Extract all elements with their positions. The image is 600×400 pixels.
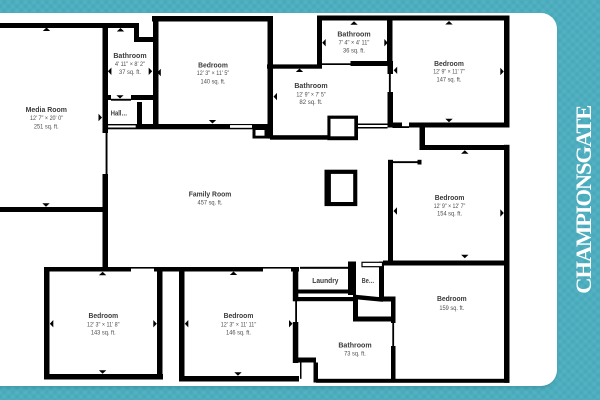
svg-text:Family Room: Family Room: [189, 189, 232, 198]
svg-text:73 sq. ft.: 73 sq. ft.: [344, 351, 366, 358]
svg-text:Hall…: Hall…: [111, 108, 128, 117]
svg-text:37 sq. ft.: 37 sq. ft.: [119, 69, 141, 76]
svg-text:12' 9" × 12' 7": 12' 9" × 12' 7": [434, 203, 466, 210]
svg-text:Be…: Be…: [362, 276, 375, 285]
svg-text:82 sq. ft.: 82 sq. ft.: [299, 99, 322, 106]
svg-text:12' 3" × 11' 11": 12' 3" × 11' 11": [221, 321, 257, 328]
svg-text:457 sq. ft.: 457 sq. ft.: [198, 200, 223, 207]
svg-text:Bedroom: Bedroom: [198, 60, 228, 69]
svg-text:12' 9" × 11' 7": 12' 9" × 11' 7": [433, 69, 465, 76]
svg-text:Bathroom: Bathroom: [338, 340, 371, 349]
svg-text:36 sq. ft.: 36 sq. ft.: [343, 48, 365, 55]
svg-text:Media Room: Media Room: [26, 105, 67, 114]
svg-text:Bedroom: Bedroom: [434, 59, 464, 68]
svg-text:Laundry: Laundry: [312, 276, 339, 285]
svg-text:Bedroom: Bedroom: [435, 193, 465, 202]
svg-text:Bathroom: Bathroom: [337, 29, 370, 38]
svg-text:Bathroom: Bathroom: [113, 51, 146, 60]
svg-text:251 sq. ft.: 251 sq. ft.: [34, 123, 59, 130]
svg-text:Bedroom: Bedroom: [437, 294, 467, 303]
svg-text:154 sq. ft.: 154 sq. ft.: [437, 211, 462, 218]
svg-text:Bathroom: Bathroom: [294, 81, 327, 90]
svg-text:7' 4" × 4' 11": 7' 4" × 4' 11": [339, 39, 370, 46]
svg-text:12' 3" × 11' 5": 12' 3" × 11' 5": [197, 70, 230, 77]
svg-text:4' 11" × 8' 2": 4' 11" × 8' 2": [115, 61, 145, 68]
svg-text:147 sq. ft.: 147 sq. ft.: [437, 77, 462, 84]
svg-text:12' 9" × 7' 5": 12' 9" × 7' 5": [296, 91, 325, 98]
svg-text:140 sq. ft.: 140 sq. ft.: [201, 78, 226, 85]
svg-text:146 sq. ft.: 146 sq. ft.: [226, 330, 251, 337]
svg-text:143 sq. ft.: 143 sq. ft.: [91, 330, 116, 337]
svg-text:Bedroom: Bedroom: [224, 311, 254, 320]
svg-text:CHAMPIONSGATE: CHAMPIONSGATE: [571, 105, 596, 294]
svg-text:12' 7" × 20' 0": 12' 7" × 20' 0": [30, 115, 63, 122]
svg-text:159 sq. ft.: 159 sq. ft.: [439, 305, 464, 312]
svg-text:12' 3" × 11' 8": 12' 3" × 11' 8": [87, 321, 120, 328]
svg-text:Bedroom: Bedroom: [88, 311, 118, 320]
